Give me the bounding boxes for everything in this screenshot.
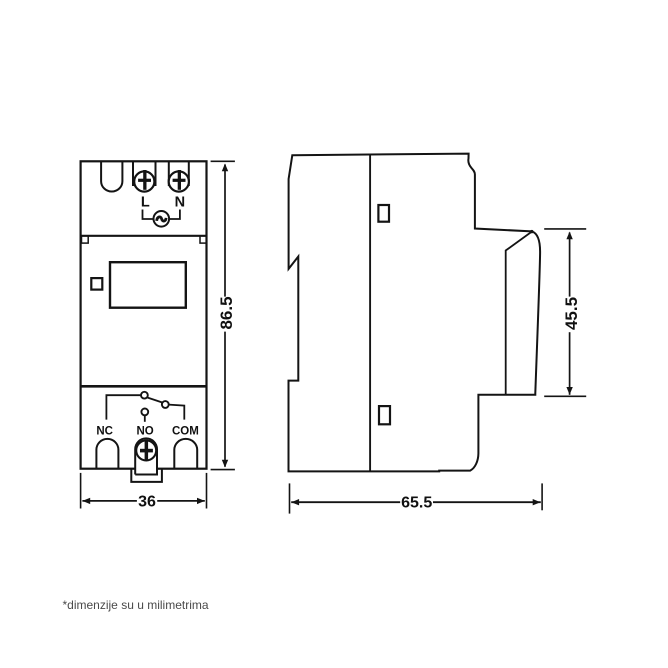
svg-text:86.5: 86.5 [217, 296, 236, 329]
svg-text:L: L [141, 195, 150, 211]
svg-text:NO: NO [136, 425, 153, 437]
svg-text:65.5: 65.5 [401, 495, 432, 512]
svg-text:*dimenzije su u milimetrima: *dimenzije su u milimetrima [63, 598, 209, 612]
svg-text:45.5: 45.5 [562, 297, 581, 330]
svg-text:COM: COM [172, 425, 199, 437]
svg-text:36: 36 [138, 493, 156, 510]
svg-text:N: N [175, 195, 185, 211]
svg-text:NC: NC [96, 425, 113, 437]
